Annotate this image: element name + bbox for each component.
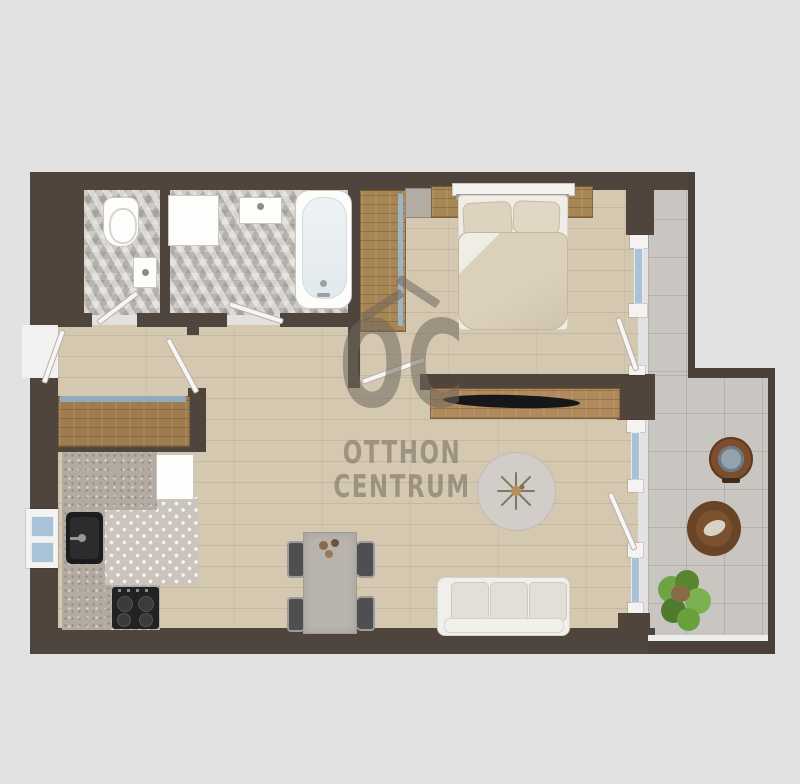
wall-segment [137,313,227,327]
floorplan-image: OC OTTHON CENTRUM [0,0,800,784]
bedroom-terrace-window [634,248,643,304]
window-frame [628,603,643,613]
wardrobe-glass-strip [398,194,403,326]
terrace-wall [768,368,775,654]
plant-pot [671,585,690,602]
stove-burner [138,596,154,612]
kitchen-window [31,542,54,563]
stove-burner [117,596,133,612]
wall-segment [58,190,84,325]
terrace-wall [648,641,775,654]
table-decor [331,539,339,547]
terrace-wall [688,368,775,378]
table-decor [319,541,328,550]
window-frame [630,235,648,248]
stove-knobs [118,589,152,592]
floor-terrace-upper [648,186,688,372]
bath-sink-faucet [257,203,264,210]
plant-leaf [677,608,700,631]
kitchen-counter [62,452,157,510]
closet-glass-strip [60,396,186,402]
fridge [156,454,194,500]
bath-sink [239,197,282,224]
window-frame [627,420,645,432]
terrace-table-leg [722,478,740,483]
wall-segment [626,190,654,235]
sofa-cushion [529,582,567,621]
living-terrace-window [631,432,640,480]
wall-segment [30,190,58,325]
living-terrace-window2 [631,557,640,603]
wall-segment [30,378,58,509]
bed-duvet-fold [459,233,503,277]
shower-base [168,195,219,246]
dining-chair [354,596,375,631]
plant-on-rug [494,469,538,513]
stove-burner [139,613,153,627]
terrace-wall [688,172,695,376]
sofa-cushion [490,582,528,621]
hall-closet [58,396,190,447]
wall-segment [58,313,92,327]
bathtub-drain [320,280,327,287]
sofa-seat-front [444,618,564,633]
kitchen-faucet-spout [70,537,79,540]
wall-segment [187,327,199,335]
wall-segment [617,374,655,420]
stove-burner [117,613,131,627]
floor-kitchen-tile [105,497,198,585]
bathtub-faucet [317,293,330,297]
wall-segment [30,172,694,190]
wc-sink-faucet [142,269,149,276]
kitchen-faucet [78,534,86,542]
window-frame [629,304,647,317]
wall-segment [618,613,650,635]
dining-table [303,532,357,634]
dresser [405,188,433,218]
wall-segment [30,568,58,628]
toilet-seat [109,208,137,244]
terrace-plant [655,568,711,632]
table-decor [325,550,333,558]
bed-pillow [512,200,560,235]
window-frame [628,480,643,492]
sofa-cushion [451,582,489,621]
kitchen-window [31,516,54,537]
terrace-table-top [718,446,744,472]
dining-chair [354,541,375,578]
